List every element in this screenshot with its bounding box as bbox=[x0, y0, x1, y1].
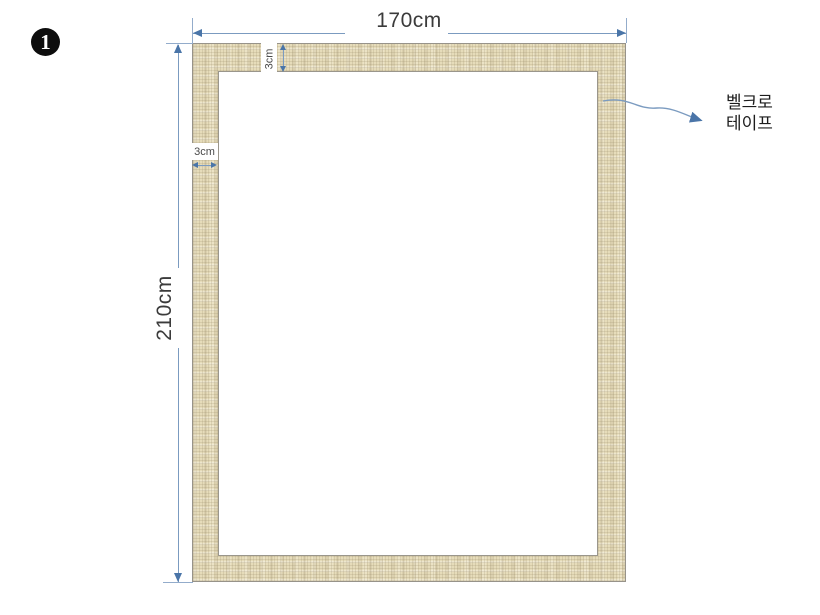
fabric-frame bbox=[192, 43, 626, 582]
extension-line-top-left bbox=[192, 18, 193, 43]
callout-arrow-icon bbox=[601, 92, 713, 132]
arrow-up-icon bbox=[174, 44, 182, 53]
arrow-left-icon bbox=[193, 29, 202, 37]
extension-line-left-top bbox=[166, 43, 193, 44]
frame-opening bbox=[218, 71, 598, 556]
small-arrow-right-icon bbox=[211, 162, 217, 168]
top-border-dimension-label: 3cm bbox=[261, 41, 277, 77]
height-dimension-line-top bbox=[178, 45, 179, 268]
velcro-tape-label-line1: 벨크로 bbox=[726, 92, 773, 113]
velcro-tape-label: 벨크로 테이프 bbox=[726, 92, 773, 134]
step-1-badge: 1 bbox=[31, 28, 60, 56]
left-border-dimension-text: 3cm bbox=[194, 146, 215, 158]
top-border-dimension-text: 3cm bbox=[263, 49, 275, 70]
step-number: 1 bbox=[40, 30, 51, 55]
arrow-right-icon bbox=[617, 29, 626, 37]
small-arrow-up-icon bbox=[280, 44, 286, 50]
velcro-tape-label-line2: 테이프 bbox=[726, 113, 773, 134]
extension-line-left-bottom bbox=[163, 582, 193, 583]
small-arrow-left-icon bbox=[192, 162, 198, 168]
height-dimension-line-bottom bbox=[178, 348, 179, 582]
left-border-dimension-label: 3cm bbox=[191, 143, 218, 160]
arrow-down-icon bbox=[174, 573, 182, 582]
width-dimension-line-left bbox=[193, 33, 345, 34]
height-dimension-label: 210cm bbox=[153, 273, 175, 343]
small-arrow-down-icon bbox=[280, 66, 286, 72]
width-dimension-line-right bbox=[448, 33, 626, 34]
width-dimension-label: 170cm bbox=[374, 9, 444, 33]
extension-line-top-right bbox=[626, 18, 627, 43]
